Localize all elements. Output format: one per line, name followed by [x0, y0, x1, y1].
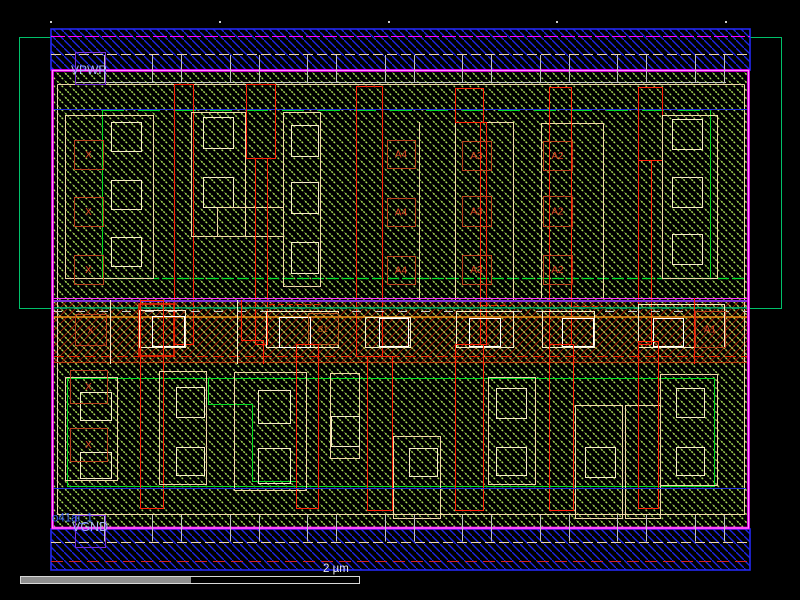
svg-text:X: X [87, 325, 94, 336]
svg-text:A2: A2 [551, 151, 564, 162]
svg-text:VGND: VGND [72, 520, 108, 534]
svg-text:A4: A4 [395, 208, 408, 219]
svg-text:A2: A2 [551, 265, 564, 276]
svg-text:A3: A3 [470, 207, 483, 218]
svg-text:X: X [85, 382, 92, 393]
svg-text:A1: A1 [704, 325, 717, 336]
svg-text:A2: A2 [551, 207, 564, 218]
svg-text:A4: A4 [395, 150, 408, 161]
svg-text:B1: B1 [318, 325, 328, 334]
svg-text:A3: A3 [470, 265, 483, 276]
svg-text:X: X [85, 207, 92, 218]
svg-text:X: X [85, 265, 92, 276]
svg-text:A4: A4 [395, 266, 408, 277]
svg-text:2 µm: 2 µm [323, 563, 349, 575]
svg-text:A3: A3 [470, 151, 483, 162]
svg-text:VPWR: VPWR [71, 63, 107, 77]
svg-text:X: X [85, 150, 92, 161]
svg-text:X: X [85, 440, 92, 451]
